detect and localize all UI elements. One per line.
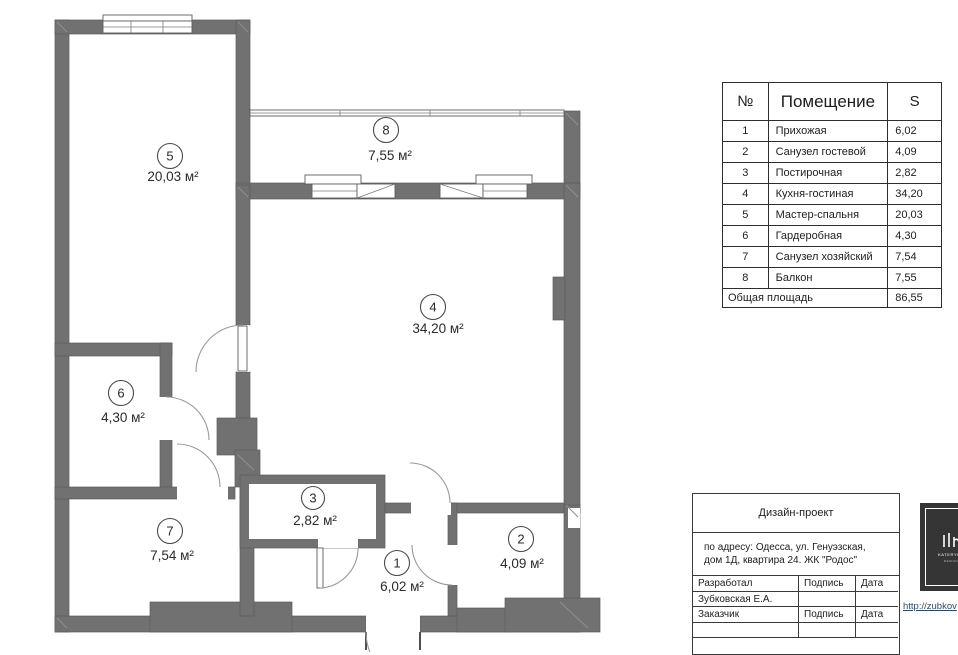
row-room: Гардеробная bbox=[768, 226, 888, 247]
row-area: 4,09 bbox=[888, 142, 942, 163]
room-label-1: 1 6,02 м² bbox=[380, 551, 424, 595]
logo-frame: KATERYNA DESIGN bbox=[925, 508, 958, 586]
row-area: 2,82 bbox=[888, 163, 942, 184]
signature-label-2: Подпись bbox=[799, 607, 856, 623]
row-number: 7 bbox=[723, 247, 769, 268]
row-number: 3 bbox=[723, 163, 769, 184]
logo-caption: KATERYNA bbox=[938, 552, 958, 557]
room-label-6: 6 4,30 м² bbox=[101, 381, 145, 426]
title-block-empty-row bbox=[693, 638, 899, 655]
room-label-7: 7 7,54 м² bbox=[150, 519, 194, 564]
svg-text:7,55 м²: 7,55 м² bbox=[368, 148, 412, 163]
col-number-header: № bbox=[723, 83, 769, 121]
col-room-header: Помещение bbox=[768, 83, 888, 121]
client-name-field bbox=[693, 623, 799, 638]
table-row: 3 Постирочная 2,82 bbox=[723, 163, 942, 184]
total-row: Общая площадь 86,55 bbox=[723, 289, 942, 308]
row-room: Кухня-гостиная bbox=[768, 184, 888, 205]
row-number: 5 bbox=[723, 205, 769, 226]
row-number: 4 bbox=[723, 184, 769, 205]
svg-text:34,20 м²: 34,20 м² bbox=[412, 321, 464, 336]
total-value: 86,55 bbox=[888, 289, 942, 308]
row-number: 2 bbox=[723, 142, 769, 163]
svg-text:4,09 м²: 4,09 м² bbox=[500, 556, 544, 571]
room-label-2: 2 4,09 м² bbox=[500, 527, 544, 572]
balcony-glazing bbox=[250, 110, 564, 116]
signature-label: Подпись bbox=[799, 576, 856, 592]
client-signature-field bbox=[799, 623, 856, 638]
address-line-1: по адресу: Одесса, ул. Генуэзская, bbox=[704, 541, 899, 555]
date-label-2: Дата bbox=[856, 607, 898, 623]
row-room: Прихожая bbox=[768, 121, 888, 142]
window-bedroom bbox=[103, 15, 192, 33]
svg-text:4,30 м²: 4,30 м² bbox=[101, 410, 145, 425]
svg-text:1: 1 bbox=[393, 556, 400, 571]
col-area-header: S bbox=[888, 83, 942, 121]
client-label: Заказчик bbox=[693, 607, 799, 623]
row-number: 1 bbox=[723, 121, 769, 142]
svg-text:6: 6 bbox=[117, 386, 124, 401]
table-row: 6 Гардеробная 4,30 bbox=[723, 226, 942, 247]
svg-text:7: 7 bbox=[166, 524, 173, 539]
room-label-5: 5 20,03 м² bbox=[147, 144, 199, 185]
row-area: 7,54 bbox=[888, 247, 942, 268]
svg-text:7,54 м²: 7,54 м² bbox=[150, 548, 194, 563]
total-label: Общая площадь bbox=[723, 289, 888, 308]
logo-monogram bbox=[940, 532, 958, 550]
room-label-8: 8 7,55 м² bbox=[368, 118, 412, 164]
svg-text:2: 2 bbox=[517, 532, 524, 547]
address-line-2: дом 1Д, квартира 24. ЖК "Родос" bbox=[704, 554, 899, 568]
table-row: 1 Прихожая 6,02 bbox=[723, 121, 942, 142]
row-room: Санузел хозяйский bbox=[768, 247, 888, 268]
signature-field bbox=[799, 592, 856, 607]
svg-text:8: 8 bbox=[382, 123, 389, 138]
room-label-4: 4 34,20 м² bbox=[412, 295, 464, 337]
date-field bbox=[856, 592, 898, 607]
schedule-table: № Помещение S 1 Прихожая 6,02 2 Санузел … bbox=[722, 82, 942, 308]
developed-label: Разработал bbox=[693, 576, 799, 592]
svg-text:5: 5 bbox=[166, 149, 173, 164]
svg-text:4: 4 bbox=[429, 300, 436, 315]
table-row: 4 Кухня-гостиная 34,20 bbox=[723, 184, 942, 205]
table-row: 2 Санузел гостевой 4,09 bbox=[723, 142, 942, 163]
designer-logo: KATERYNA DESIGN bbox=[920, 503, 958, 591]
website-link[interactable]: http://zubkov bbox=[903, 601, 958, 612]
svg-text:3: 3 bbox=[309, 491, 316, 506]
row-area: 6,02 bbox=[888, 121, 942, 142]
row-area: 20,03 bbox=[888, 205, 942, 226]
floor-plan: 1 6,02 м² 2 4,09 м² 3 2,82 м² 4 34,20 м²… bbox=[0, 0, 660, 652]
developer-name: Зубковская Е.А. bbox=[693, 592, 799, 607]
project-address: по адресу: Одесса, ул. Генуэзская, дом 1… bbox=[693, 533, 899, 576]
row-number: 8 bbox=[723, 268, 769, 289]
date-label: Дата bbox=[856, 576, 898, 592]
signature-grid: Разработал Подпись Дата Зубковская Е.А. … bbox=[693, 576, 899, 638]
table-row: 7 Санузел хозяйский 7,54 bbox=[723, 247, 942, 268]
page-root: 1 6,02 м² 2 4,09 м² 3 2,82 м² 4 34,20 м²… bbox=[0, 0, 958, 652]
svg-text:20,03 м²: 20,03 м² bbox=[147, 169, 199, 184]
title-block: Дизайн-проект по адресу: Одесса, ул. Ген… bbox=[692, 493, 900, 655]
client-date-field bbox=[856, 623, 898, 638]
row-area: 34,20 bbox=[888, 184, 942, 205]
table-row: 8 Балкон 7,55 bbox=[723, 268, 942, 289]
row-number: 6 bbox=[723, 226, 769, 247]
schedule-header-row: № Помещение S bbox=[723, 83, 942, 121]
row-area: 7,55 bbox=[888, 268, 942, 289]
row-room: Балкон bbox=[768, 268, 888, 289]
row-room: Санузел гостевой bbox=[768, 142, 888, 163]
table-row: 5 Мастер-спальня 20,03 bbox=[723, 205, 942, 226]
project-type: Дизайн-проект bbox=[693, 494, 899, 533]
row-area: 4,30 bbox=[888, 226, 942, 247]
row-room: Постирочная bbox=[768, 163, 888, 184]
svg-text:6,02 м²: 6,02 м² bbox=[380, 579, 424, 594]
svg-text:2,82 м²: 2,82 м² bbox=[293, 513, 337, 528]
row-room: Мастер-спальня bbox=[768, 205, 888, 226]
logo-subcaption: DESIGN bbox=[944, 559, 958, 563]
